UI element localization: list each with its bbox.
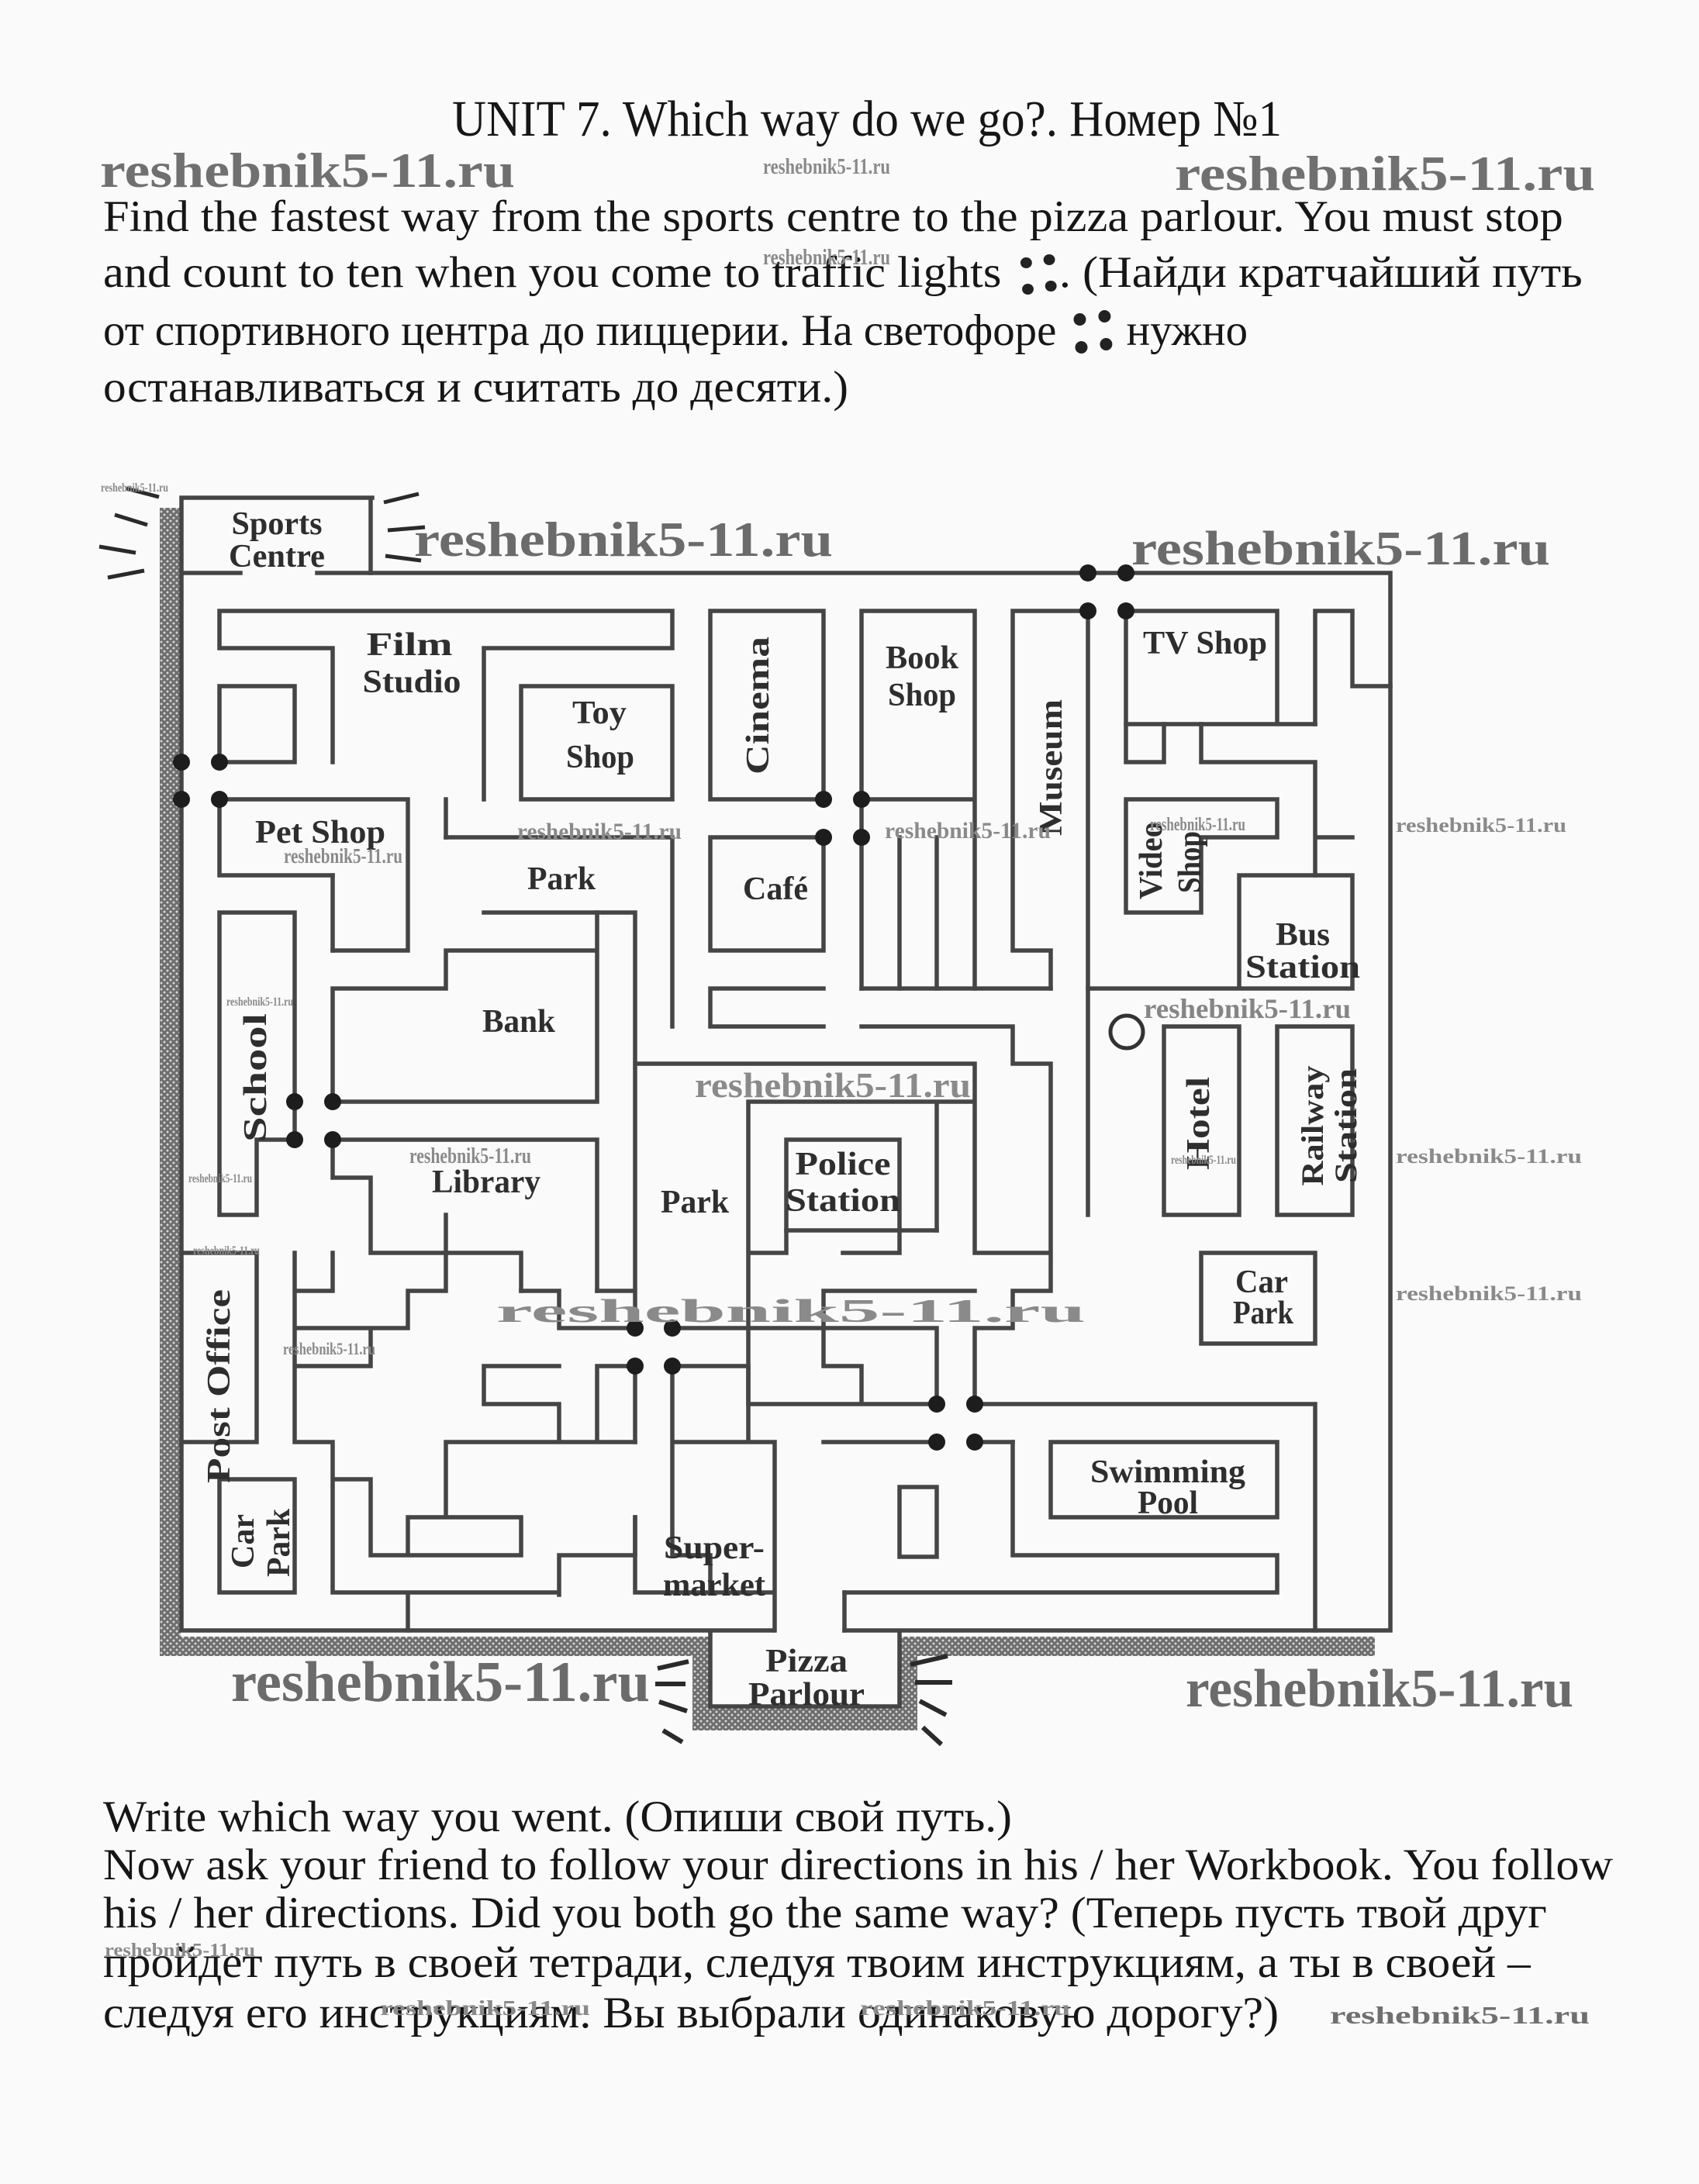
svg-text:reshebnik5-11.ru: reshebnik5-11.ru [231, 1651, 650, 1714]
svg-text:Park: Park [1233, 1296, 1294, 1331]
svg-text:Shop: Shop [888, 678, 956, 713]
svg-text:reshebnik5-11.ru: reshebnik5-11.ru [763, 155, 890, 179]
svg-text:reshebnik5-11.ru: reshebnik5-11.ru [1144, 993, 1351, 1024]
svg-text:Railway: Railway [1295, 1066, 1330, 1186]
svg-text:Post Office: Post Office [202, 1289, 237, 1483]
svg-text:reshebnik5-11.ru: reshebnik5-11.ru [1175, 146, 1595, 201]
svg-text:Studio: Studio [363, 664, 461, 700]
svg-text:reshebnik5-11.ru: reshebnik5-11.ru [1396, 814, 1566, 837]
svg-text:Cinema: Cinema [741, 637, 776, 775]
svg-text:reshebnik5-11.ru: reshebnik5-11.ru [1171, 1154, 1236, 1167]
svg-text:Station: Station [1328, 1068, 1363, 1183]
svg-text:Bus: Bus [1276, 917, 1330, 953]
svg-text:Sports: Sports [232, 506, 323, 542]
svg-text:Book: Book [886, 640, 959, 676]
svg-text:reshebnik5-11.ru: reshebnik5-11.ru [226, 995, 293, 1009]
svg-text:Car: Car [226, 1514, 261, 1568]
svg-text:reshebnik5-11.ru: reshebnik5-11.ru [101, 481, 168, 495]
svg-text:reshebnik5-11.ru: reshebnik5-11.ru [100, 143, 515, 198]
svg-text:Station: Station [1245, 950, 1360, 985]
svg-text:reshebnik5-11.ru: reshebnik5-11.ru [885, 818, 1051, 844]
svg-text:Library: Library [432, 1164, 540, 1200]
svg-text:reshebnik5-11.ru: reshebnik5-11.ru [1396, 1145, 1582, 1168]
svg-text:Shop: Shop [566, 740, 634, 775]
svg-text:reshebnik5-11.ru: reshebnik5-11.ru [1186, 1659, 1573, 1719]
svg-text:reshebnik5-11.ru: reshebnik5-11.ru [496, 1294, 1086, 1330]
svg-text:reshebnik5-11.ru: reshebnik5-11.ru [695, 1065, 971, 1105]
svg-text:Centre: Centre [229, 539, 325, 574]
svg-text:Film: Film [367, 627, 453, 663]
svg-text:reshebnik5-11.ru: reshebnik5-11.ru [380, 1996, 590, 2020]
svg-text:reshebnik5-11.ru: reshebnik5-11.ru [763, 246, 890, 270]
svg-text:Toy: Toy [572, 695, 627, 731]
svg-text:reshebnik5-11.ru: reshebnik5-11.ru [193, 1244, 260, 1258]
svg-text:School: School [238, 1013, 274, 1142]
svg-text:market: market [663, 1568, 765, 1603]
svg-text:Bank: Bank [482, 1004, 556, 1040]
svg-text:Park: Park [527, 861, 596, 897]
svg-text:Park: Park [261, 1508, 297, 1577]
svg-text:Super-: Super- [664, 1530, 765, 1566]
svg-text:reshebnik5-11.ru: reshebnik5-11.ru [517, 819, 682, 844]
svg-text:Museum: Museum [1034, 699, 1069, 836]
svg-text:reshebnik5-11.ru: reshebnik5-11.ru [1131, 523, 1550, 575]
svg-text:Pizza: Pizza [765, 1644, 848, 1679]
svg-text:reshebnik5-11.ru: reshebnik5-11.ru [284, 844, 402, 868]
svg-text:Shop: Shop [1172, 831, 1208, 893]
svg-text:Station: Station [786, 1183, 900, 1219]
svg-text:Pool: Pool [1138, 1485, 1198, 1521]
svg-text:reshebnik5-11.ru: reshebnik5-11.ru [414, 512, 833, 567]
svg-text:reshebnik5-11.ru: reshebnik5-11.ru [283, 1339, 375, 1358]
svg-text:Park: Park [661, 1185, 730, 1220]
svg-text:reshebnik5-11.ru: reshebnik5-11.ru [860, 1996, 1070, 2020]
svg-text:reshebnik5-11.ru: reshebnik5-11.ru [105, 1941, 255, 1961]
svg-text:Café: Café [743, 871, 808, 907]
svg-text:reshebnik5-11.ru: reshebnik5-11.ru [188, 1172, 252, 1185]
svg-text:TV Shop: TV Shop [1143, 626, 1267, 661]
svg-text:reshebnik5-11.ru: reshebnik5-11.ru [1396, 1282, 1582, 1305]
svg-text:Parlour: Parlour [748, 1677, 865, 1713]
svg-text:reshebnik5-11.ru: reshebnik5-11.ru [409, 1144, 531, 1168]
svg-text:reshebnik5-11.ru: reshebnik5-11.ru [1330, 2001, 1590, 2029]
svg-text:Police: Police [796, 1147, 891, 1182]
svg-text:reshebnik5-11.ru: reshebnik5-11.ru [1150, 815, 1245, 835]
